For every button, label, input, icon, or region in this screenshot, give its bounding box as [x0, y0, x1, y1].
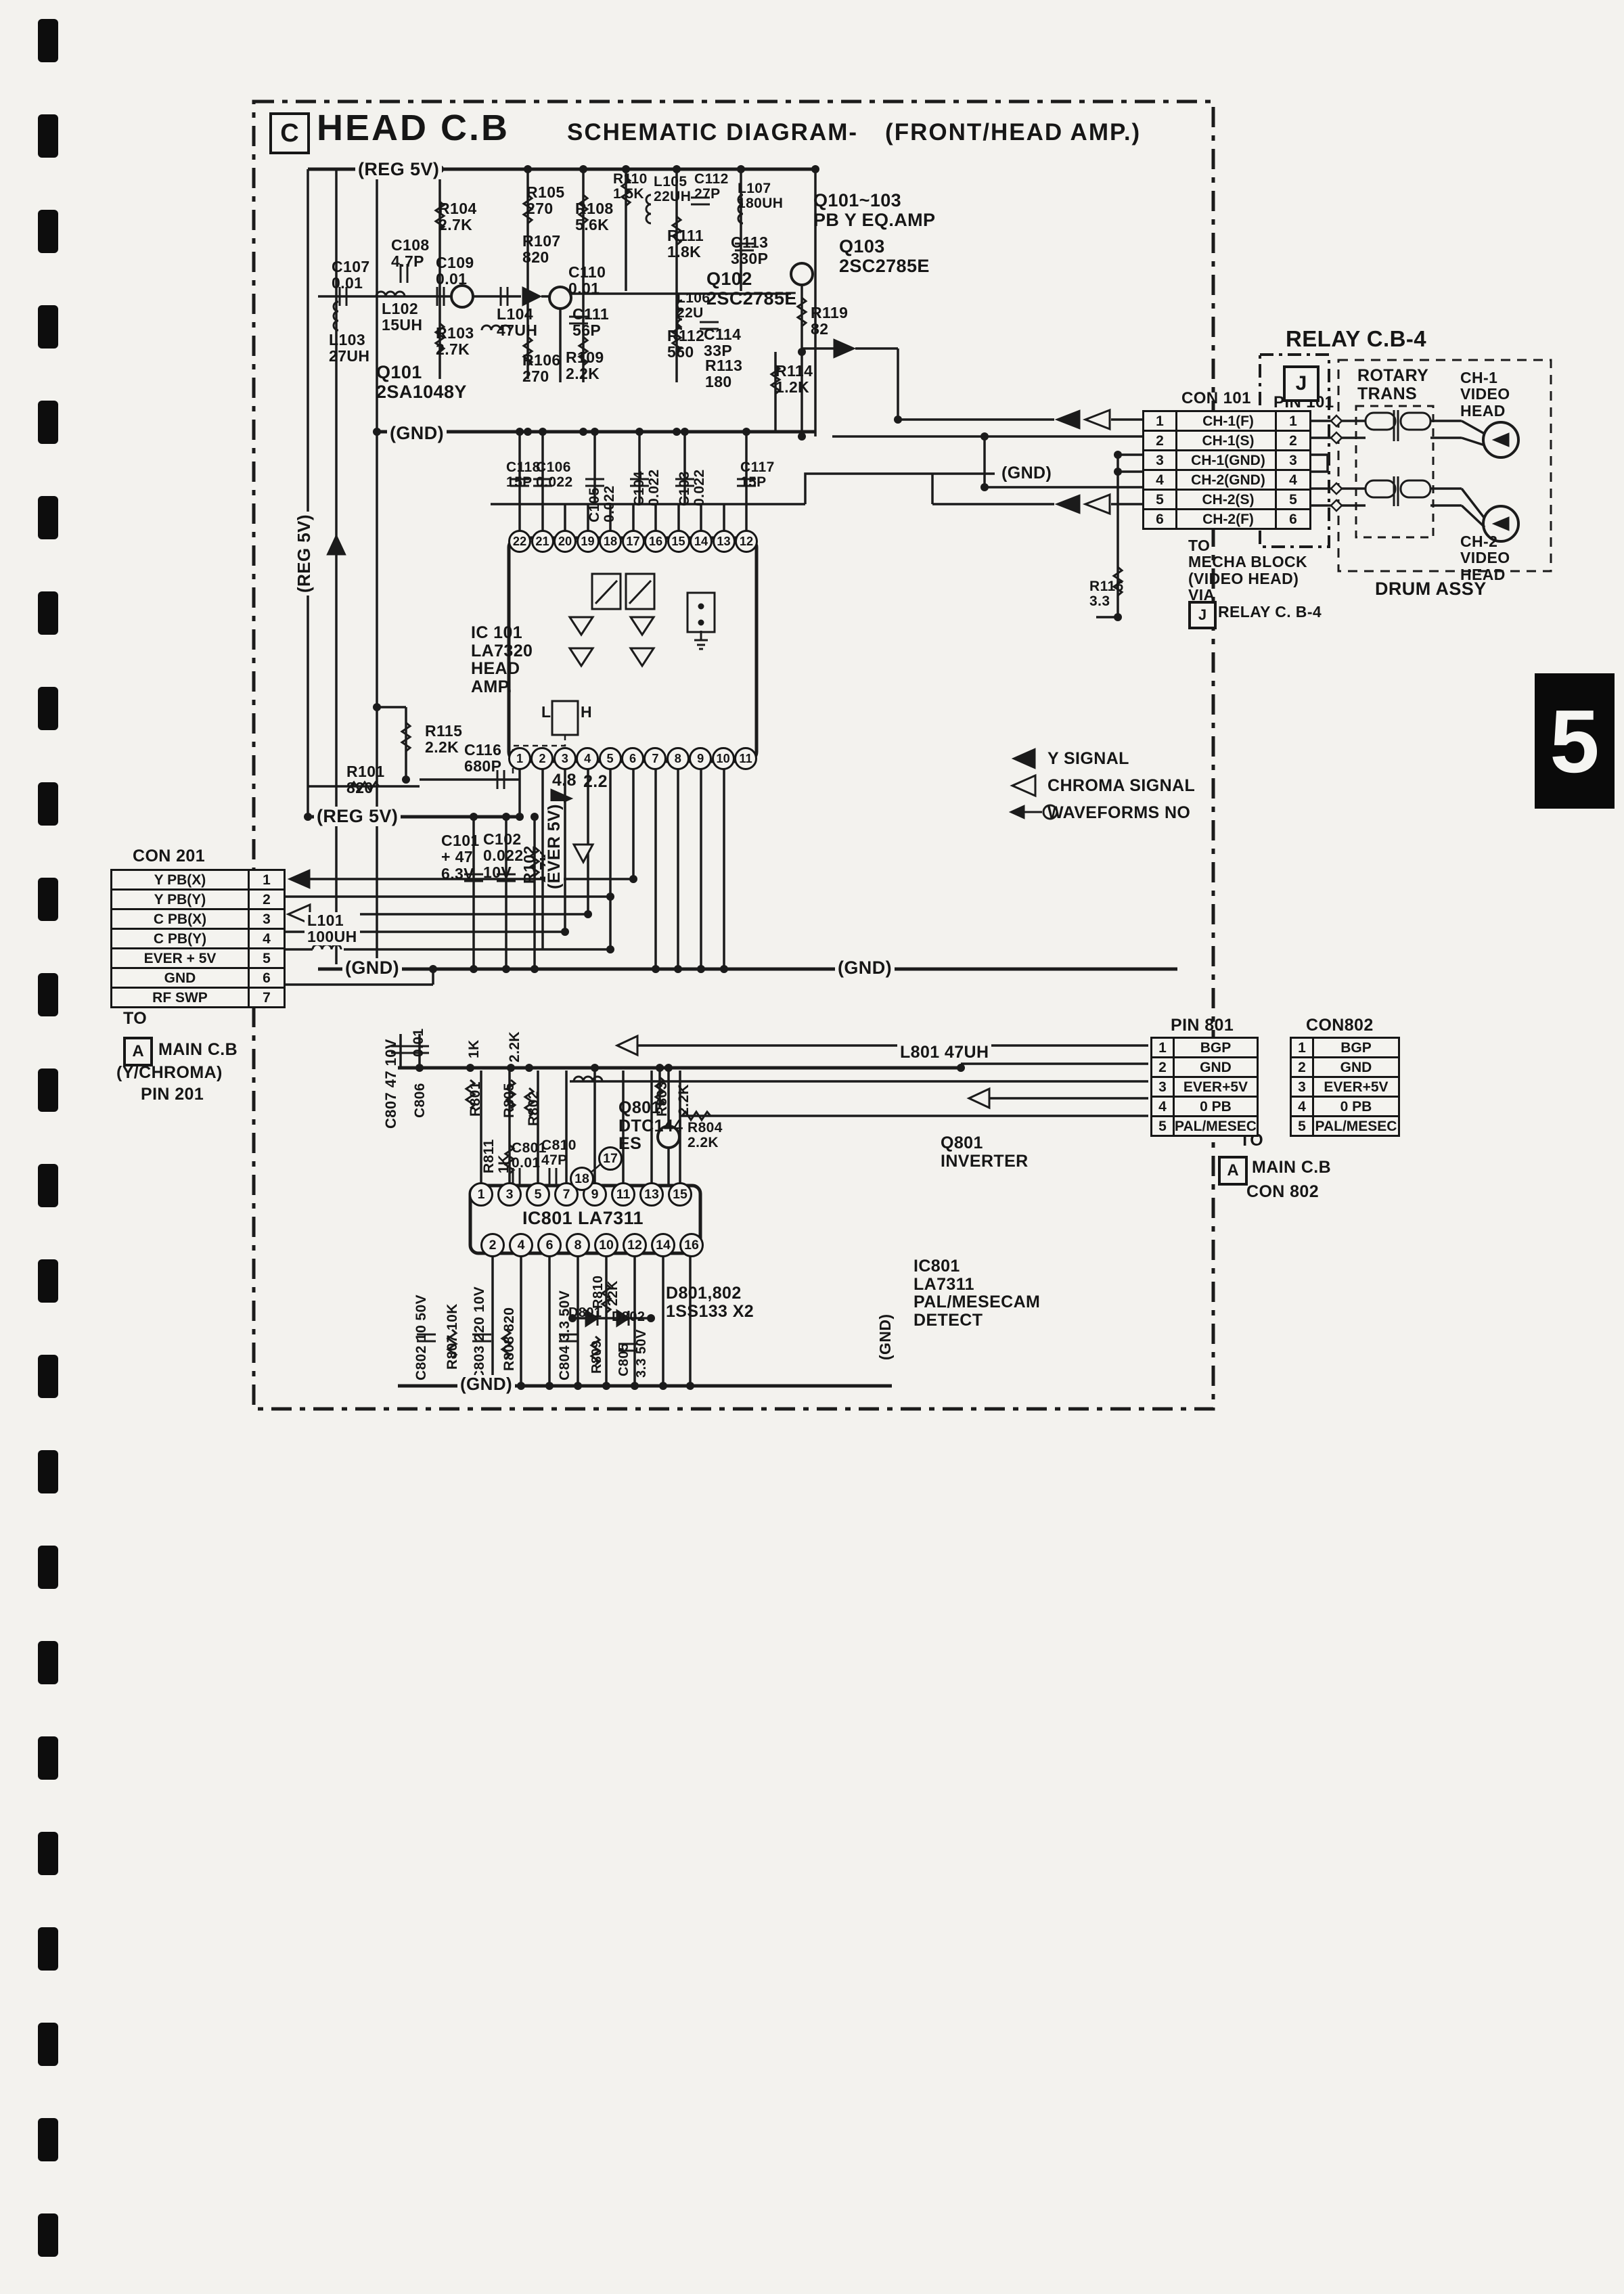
table-cell: PAL/MESEC: [1313, 1117, 1399, 1136]
reg5v-vertical-label: (REG 5V): [295, 512, 314, 595]
table-cell: C PB(X): [112, 909, 249, 929]
table-cell: CH-1(F): [1177, 411, 1280, 431]
con201-note: MAIN C.B: [158, 1041, 238, 1059]
ic801-bottom-pin: 10: [594, 1233, 618, 1257]
pin2-voltage: 4.8: [552, 771, 577, 790]
table-cell: CH-1(S): [1177, 431, 1280, 451]
con802-table: 1BGP2GND3EVER+5V40 PB5PAL/MESEC: [1290, 1037, 1400, 1137]
table-cell: RF SWP: [112, 988, 249, 1008]
ic101-top-pin: 17: [622, 530, 645, 553]
ic101-top-pin: 19: [577, 530, 600, 553]
component-label: PIN 201: [141, 1085, 204, 1104]
ic101-top-pin: 14: [690, 530, 713, 553]
component-label: R115 2.2K: [425, 723, 462, 756]
component-label: C810 47P: [541, 1138, 577, 1169]
table-cell: 5: [1152, 1117, 1174, 1136]
ic101-bottom-pin: 5: [599, 747, 622, 770]
table-cell: 2: [1291, 1058, 1313, 1077]
component-label: R801: [468, 1081, 483, 1117]
table-cell: CH-2(F): [1177, 510, 1280, 529]
component-label: L105 22UH: [654, 175, 691, 205]
ic101-top-pin: 16: [644, 530, 667, 553]
table-cell: GND: [1313, 1058, 1399, 1077]
component-label: R803: [655, 1081, 670, 1117]
table-cell: 6: [1276, 510, 1311, 529]
rotary-trans-label: ROTARY TRANS: [1357, 367, 1428, 403]
table-cell: GND: [112, 968, 249, 988]
table-cell: EVER+5V: [1174, 1077, 1258, 1097]
component-label: 22K: [606, 1280, 621, 1306]
con802-note: MAIN C.B: [1252, 1159, 1331, 1177]
subtitle-scope: (FRONT/HEAD AMP.): [885, 119, 1141, 145]
diode-part-label: D801,802 1SS133 X2: [666, 1284, 754, 1320]
table-cell: CH-1(GND): [1177, 451, 1280, 470]
component-label: (GND): [877, 1311, 893, 1363]
table-cell: 3: [1152, 1077, 1174, 1097]
pin801-table: 1BGP2GND3EVER+5V40 PB5PAL/MESEC: [1150, 1037, 1259, 1137]
component-label: L101 100UH: [304, 912, 360, 945]
component-label: H: [581, 704, 592, 720]
component-label: (GND): [342, 958, 402, 978]
ic801-function-label: IC801 LA7311 PAL/MESECAM DETECT: [913, 1257, 1040, 1329]
ic801-top-pin: 5: [526, 1182, 550, 1207]
component-label: R805: [502, 1083, 517, 1118]
table-cell: 4: [1152, 1097, 1174, 1117]
legend-waveforms: WAVEFORMS NO: [1047, 804, 1190, 822]
component-label: R811 1K: [482, 1139, 512, 1173]
table-cell: BGP: [1313, 1038, 1399, 1058]
component-label: C107 0.01: [332, 258, 370, 292]
ic101-top-pin: 12: [735, 530, 758, 553]
pin101-table: 123456: [1275, 410, 1311, 530]
component-label: L107 180UH: [738, 181, 783, 212]
ic801-top-pin: 15: [668, 1182, 692, 1207]
component-label: C101 + 47 6.3V: [441, 832, 480, 882]
ic101-bottom-pin: 10: [712, 747, 735, 770]
component-label: C803 220 10V: [472, 1286, 487, 1380]
table-cell: 0 PB: [1174, 1097, 1258, 1117]
component-label: C106 0.022: [536, 460, 573, 491]
table-cell: C PB(Y): [112, 929, 249, 949]
table-cell: 5: [249, 949, 285, 968]
table-cell: 0 PB: [1313, 1097, 1399, 1117]
component-label: R112 560: [667, 328, 704, 361]
component-label: L106 22U: [677, 291, 710, 321]
subtitle-text: SCHEMATIC DIAGRAM-: [567, 119, 858, 145]
table-cell: 5: [1276, 490, 1311, 510]
table-cell: PAL/MESEC: [1174, 1117, 1258, 1136]
table-cell: CH-2(S): [1177, 490, 1280, 510]
ic101-bottom-pin: 11: [734, 747, 757, 770]
component-label: R108 5.6K: [575, 200, 614, 233]
ic101-top-pin: 20: [554, 530, 577, 553]
page-subtitle: SCHEMATIC DIAGRAM-(FRONT/HEAD AMP.): [567, 119, 1168, 146]
table-cell: Y PB(X): [112, 870, 249, 890]
component-label: R116 3.3: [1089, 579, 1124, 610]
component-label: C117 15P: [740, 460, 775, 491]
pin3-voltage: 2.2: [583, 773, 608, 791]
component-label: C114 33P: [704, 326, 741, 359]
table-cell: 1: [249, 870, 285, 890]
table-cell: Y PB(Y): [112, 890, 249, 909]
q102-label: Q102 2SC2785E: [706, 269, 797, 308]
q101-label: Q101 2SA1048Y: [376, 363, 467, 401]
ic801-top-pin: 13: [639, 1182, 664, 1207]
component-label: C105 0.022: [587, 485, 618, 522]
drum-assy-label: DRUM ASSY: [1375, 579, 1487, 599]
table-cell: 3: [1144, 451, 1177, 470]
ic801-bottom-pin: 14: [651, 1233, 675, 1257]
table-cell: 4: [1144, 470, 1177, 490]
component-label: 3.3 50V: [635, 1329, 649, 1378]
component-label: C806: [413, 1083, 428, 1118]
component-label: R101 820: [346, 763, 385, 796]
component-label: C112 27P: [694, 172, 729, 202]
note-a-box-con201: A: [123, 1037, 153, 1066]
ic101-bottom-pin: 3: [554, 747, 577, 770]
ic101-bottom-pin: 9: [689, 747, 712, 770]
component-label: C110 0.01: [568, 264, 606, 297]
component-label: CON 802: [1246, 1183, 1319, 1201]
table-cell: GND: [1174, 1058, 1258, 1077]
table-cell: 4: [1276, 470, 1311, 490]
table-cell: 4: [249, 929, 285, 949]
table-cell: 3: [1276, 451, 1311, 470]
component-label: R808 820: [502, 1307, 517, 1371]
component-label: C804 3.3 50V: [558, 1290, 572, 1380]
table-cell: 2: [249, 890, 285, 909]
component-label: (GND): [457, 1375, 515, 1394]
component-label: R105 270: [526, 184, 565, 217]
ic801-bottom-pin: 8: [566, 1233, 590, 1257]
component-label: R810: [591, 1276, 606, 1309]
table-cell: 5: [1144, 490, 1177, 510]
q801-label: Q801 DTC144 ES: [618, 1099, 683, 1153]
component-label: L801 47UH: [897, 1043, 991, 1062]
component-label: C807 47 10V: [383, 1039, 399, 1129]
ic101-bottom-pin: 2: [531, 747, 554, 770]
table-cell: 1: [1152, 1038, 1174, 1058]
scanned-schematic-page: HEAD C.B SCHEMATIC DIAGRAM-(FRONT/HEAD A…: [0, 0, 1624, 2294]
reg5v-rail-label: (REG 5V): [355, 160, 442, 179]
table-cell: 2: [1276, 431, 1311, 451]
ic801-top-pin: 11: [611, 1182, 635, 1207]
component-label: R119 82: [811, 305, 848, 338]
ic801-bottom-pin: 12: [623, 1233, 647, 1257]
con201-title: CON 201: [133, 847, 205, 865]
component-label: R113 180: [705, 357, 742, 390]
mecha-block-note: TO MECHA BLOCK (VIDEO HEAD) VIA: [1188, 537, 1307, 604]
ic101-bottom-pin: 6: [621, 747, 644, 770]
component-label: D802: [612, 1310, 645, 1324]
component-label: R106 270: [522, 352, 561, 385]
ic101-bottom-pin: 8: [667, 747, 690, 770]
legend-chroma-signal: CHROMA SIGNAL: [1047, 777, 1195, 795]
component-label: (GND): [835, 958, 895, 978]
table-cell: BGP: [1174, 1038, 1258, 1058]
component-label: R807 10K: [445, 1303, 460, 1370]
ic801-title: IC801 LA7311: [522, 1209, 644, 1228]
relay-title: RELAY C.B-4: [1286, 328, 1426, 351]
ic801-top-pin: 3: [497, 1182, 522, 1207]
ch1-head-label: CH-1 VIDEO HEAD: [1460, 369, 1510, 419]
component-label: C104 0.022: [632, 469, 662, 506]
component-label: R104 2.7K: [438, 200, 477, 233]
ic101-top-pin: 22: [508, 530, 531, 553]
q103-label: Q103 2SC2785E: [839, 237, 930, 275]
table-cell: 2: [1144, 431, 1177, 451]
note-j-box: J: [1188, 601, 1217, 629]
component-label: 2.2K: [677, 1084, 692, 1115]
con101-table: 1CH-1(F)2CH-1(S)3CH-1(GND)4CH-2(GND)5CH-…: [1142, 410, 1281, 530]
component-label: C108 4.7P: [391, 237, 430, 270]
table-cell: CH-2(GND): [1177, 470, 1280, 490]
table-cell: 6: [1144, 510, 1177, 529]
component-label: R110 1.5K: [613, 172, 648, 202]
component-label: C802 10 50V: [414, 1295, 429, 1380]
table-cell: 5: [1291, 1117, 1313, 1136]
ic801-bottom-pin: 6: [537, 1233, 562, 1257]
con201-table: Y PB(X)1Y PB(Y)2C PB(X)3C PB(Y)4EVER + 5…: [110, 869, 286, 1008]
component-label: (GND): [999, 464, 1054, 482]
q801-function-label: Q801 INVERTER: [941, 1134, 1029, 1170]
ic801-bottom-pin: 16: [679, 1233, 704, 1257]
component-label: RELAY C. B-4: [1218, 604, 1322, 620]
ic101-top-pin: 13: [713, 530, 736, 553]
component-label: R804 2.2K: [687, 1121, 723, 1151]
component-label: C113 330P: [731, 234, 768, 267]
component-label: (REG 5V): [314, 807, 401, 826]
component-label: L: [541, 704, 551, 720]
table-cell: 3: [1291, 1077, 1313, 1097]
component-label: R809: [590, 1341, 604, 1374]
table-cell: EVER + 5V: [112, 949, 249, 968]
component-label: L103 27UH: [329, 332, 369, 365]
waveform-number: 17: [598, 1146, 623, 1171]
table-cell: 1: [1291, 1038, 1313, 1058]
table-cell: 6: [249, 968, 285, 988]
component-label: C805: [617, 1343, 631, 1376]
q101-103-function-label: Q101~103 PB Y EQ.AMP: [813, 191, 935, 229]
con101-title: CON 101: [1181, 390, 1251, 407]
table-cell: 1: [1144, 411, 1177, 431]
table-cell: 7: [249, 988, 285, 1008]
component-label: C102 0.022 10V: [483, 831, 524, 880]
table-cell: 3: [249, 909, 285, 929]
ever5v-vertical-label: (EVER 5V): [545, 801, 564, 892]
legend-y-signal: Y SIGNAL: [1047, 750, 1129, 768]
ic101-bottom-pin: 4: [576, 747, 599, 770]
relay-j-box: J: [1283, 365, 1319, 402]
component-label: 1K: [467, 1039, 482, 1058]
page-title: HEAD C.B: [317, 107, 510, 149]
table-cell: 4: [1291, 1097, 1313, 1117]
ic101-top-pin: 21: [531, 530, 554, 553]
ic101-bottom-pin: 7: [644, 747, 667, 770]
component-label: R114 1.2K: [775, 363, 813, 396]
component-label: L102 15UH: [382, 300, 422, 334]
component-label: R103 2.7K: [436, 325, 474, 358]
component-label: C111 56P: [572, 306, 609, 339]
ic101-top-pin: 18: [599, 530, 622, 553]
ic101-label: IC 101 LA7320 HEAD AMP.: [471, 624, 533, 696]
con802-title: CON802: [1306, 1016, 1374, 1035]
ic101-bottom-pin: 1: [508, 747, 531, 770]
component-label: 0.01: [411, 1029, 426, 1057]
pin801-title: PIN 801: [1171, 1016, 1234, 1035]
ic801-bottom-pin: 2: [480, 1233, 505, 1257]
table-cell: 1: [1276, 411, 1311, 431]
ic801-top-pin: 1: [469, 1182, 493, 1207]
waveform-number: 18: [570, 1167, 594, 1191]
gnd-rail-label: (GND): [387, 424, 447, 443]
note-a-box-con802: A: [1218, 1156, 1248, 1186]
component-label: TO: [123, 1010, 147, 1028]
component-label: 2.2K: [507, 1031, 522, 1062]
component-label: R107 820: [522, 233, 561, 266]
component-label: C109 0.01: [436, 254, 474, 288]
component-label: R802: [526, 1091, 541, 1126]
ic801-bottom-pin: 4: [509, 1233, 533, 1257]
ch2-head-label: CH-2 VIDEO HEAD: [1460, 533, 1510, 583]
component-label: R111 1.8K: [667, 227, 704, 261]
ic101-top-pin: 15: [667, 530, 690, 553]
component-label: C116 680P: [464, 742, 501, 775]
table-cell: 2: [1152, 1058, 1174, 1077]
component-label: R109 2.2K: [566, 349, 604, 382]
component-label: L104 47UH: [497, 306, 537, 339]
title-letter-box: C: [269, 112, 310, 154]
component-label: C103 0.022: [677, 469, 708, 506]
table-cell: EVER+5V: [1313, 1077, 1399, 1097]
